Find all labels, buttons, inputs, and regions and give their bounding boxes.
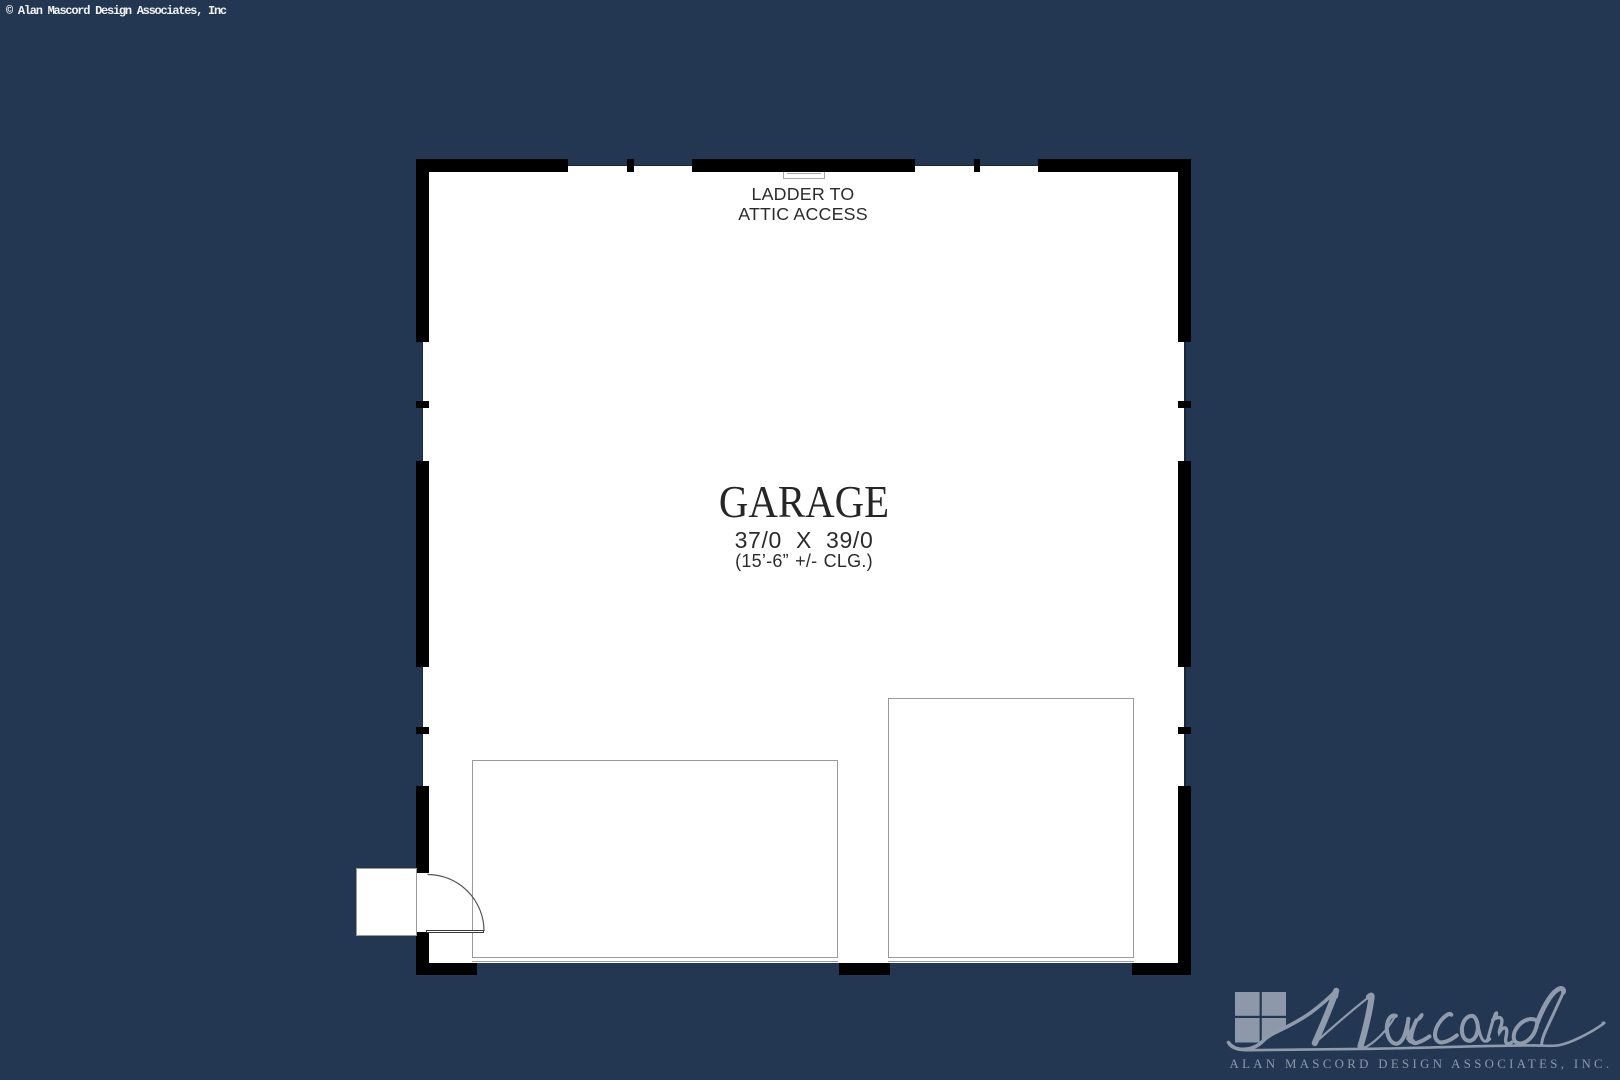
svg-text:ALAN MASCORD DESIGN ASSOCIATES: ALAN MASCORD DESIGN ASSOCIATES, INC. [1230,1057,1613,1071]
